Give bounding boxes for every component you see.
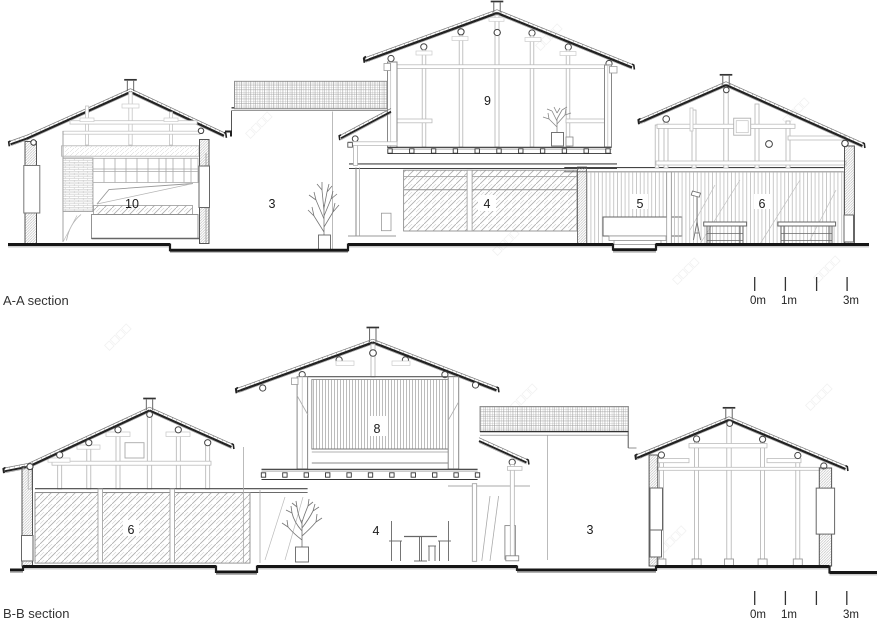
svg-text:5: 5 [637,197,644,211]
svg-text:9: 9 [484,94,491,108]
svg-text:4: 4 [484,197,491,211]
svg-text:A-A section: A-A section [3,293,69,308]
svg-text:3m: 3m [843,609,859,620]
svg-text:6: 6 [128,523,135,537]
svg-text:8: 8 [374,422,381,436]
svg-text:6: 6 [759,197,766,211]
svg-text:10: 10 [125,197,139,211]
svg-text:3: 3 [269,197,276,211]
svg-text:3m: 3m [843,295,859,307]
svg-text:4: 4 [373,524,380,538]
svg-text:0m: 0m [750,609,766,620]
svg-text:B-B section: B-B section [3,606,69,620]
svg-text:3: 3 [587,523,594,537]
svg-text:1m: 1m [781,609,797,620]
svg-text:1m: 1m [781,295,797,307]
svg-text:0m: 0m [750,295,766,307]
